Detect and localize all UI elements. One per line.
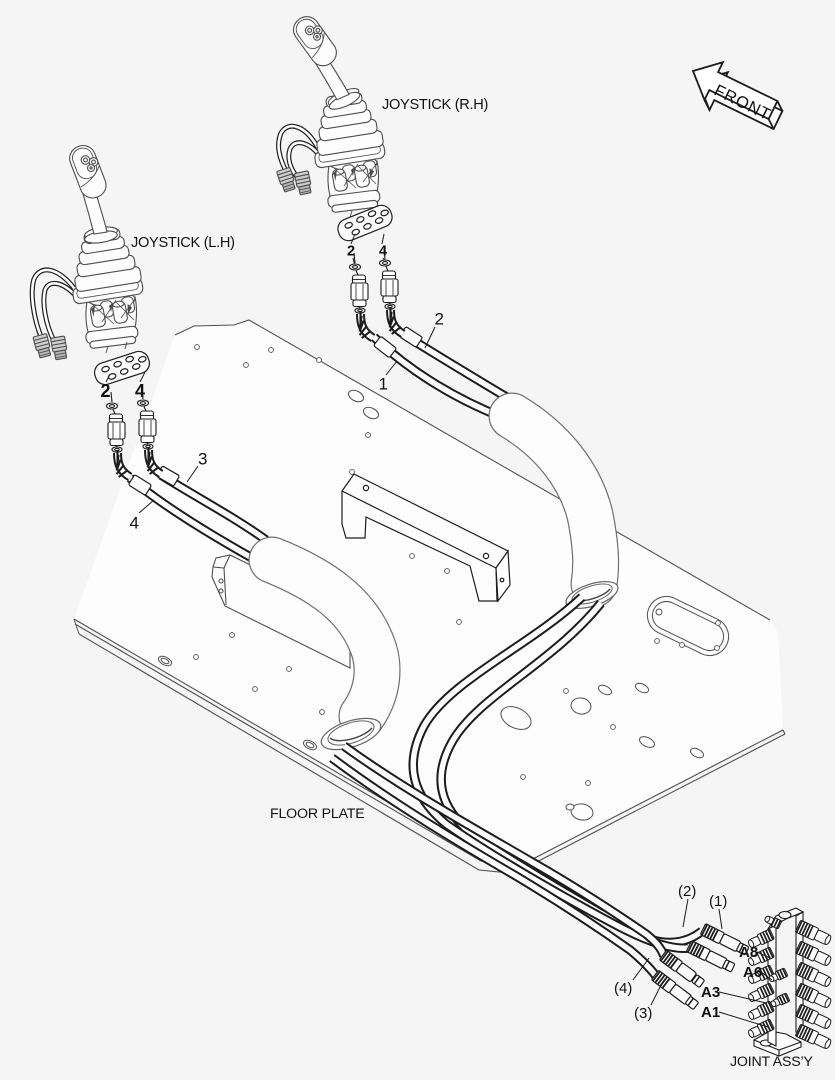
svg-text:JOYSTICK (L.H): JOYSTICK (L.H): [131, 235, 235, 251]
svg-text:(2): (2): [678, 883, 696, 900]
svg-text:2: 2: [435, 310, 444, 329]
svg-text:4: 4: [379, 244, 387, 260]
svg-text:A8: A8: [739, 944, 758, 961]
svg-text:3: 3: [198, 450, 207, 469]
svg-text:(3): (3): [634, 1005, 652, 1022]
svg-text:4: 4: [135, 381, 145, 401]
svg-text:2: 2: [347, 244, 355, 260]
svg-text:JOINT ASS’Y: JOINT ASS’Y: [730, 1054, 813, 1070]
svg-text:A1: A1: [701, 1004, 720, 1021]
svg-text:2: 2: [101, 381, 111, 401]
svg-text:(4): (4): [614, 980, 632, 997]
svg-text:(1): (1): [709, 893, 727, 910]
svg-text:A6: A6: [743, 964, 762, 981]
svg-text:A3: A3: [701, 984, 720, 1001]
svg-text:JOYSTICK (R.H): JOYSTICK (R.H): [382, 97, 488, 113]
svg-text:4: 4: [130, 514, 139, 533]
svg-text:1: 1: [379, 375, 388, 394]
svg-text:FLOOR PLATE: FLOOR PLATE: [270, 806, 365, 822]
